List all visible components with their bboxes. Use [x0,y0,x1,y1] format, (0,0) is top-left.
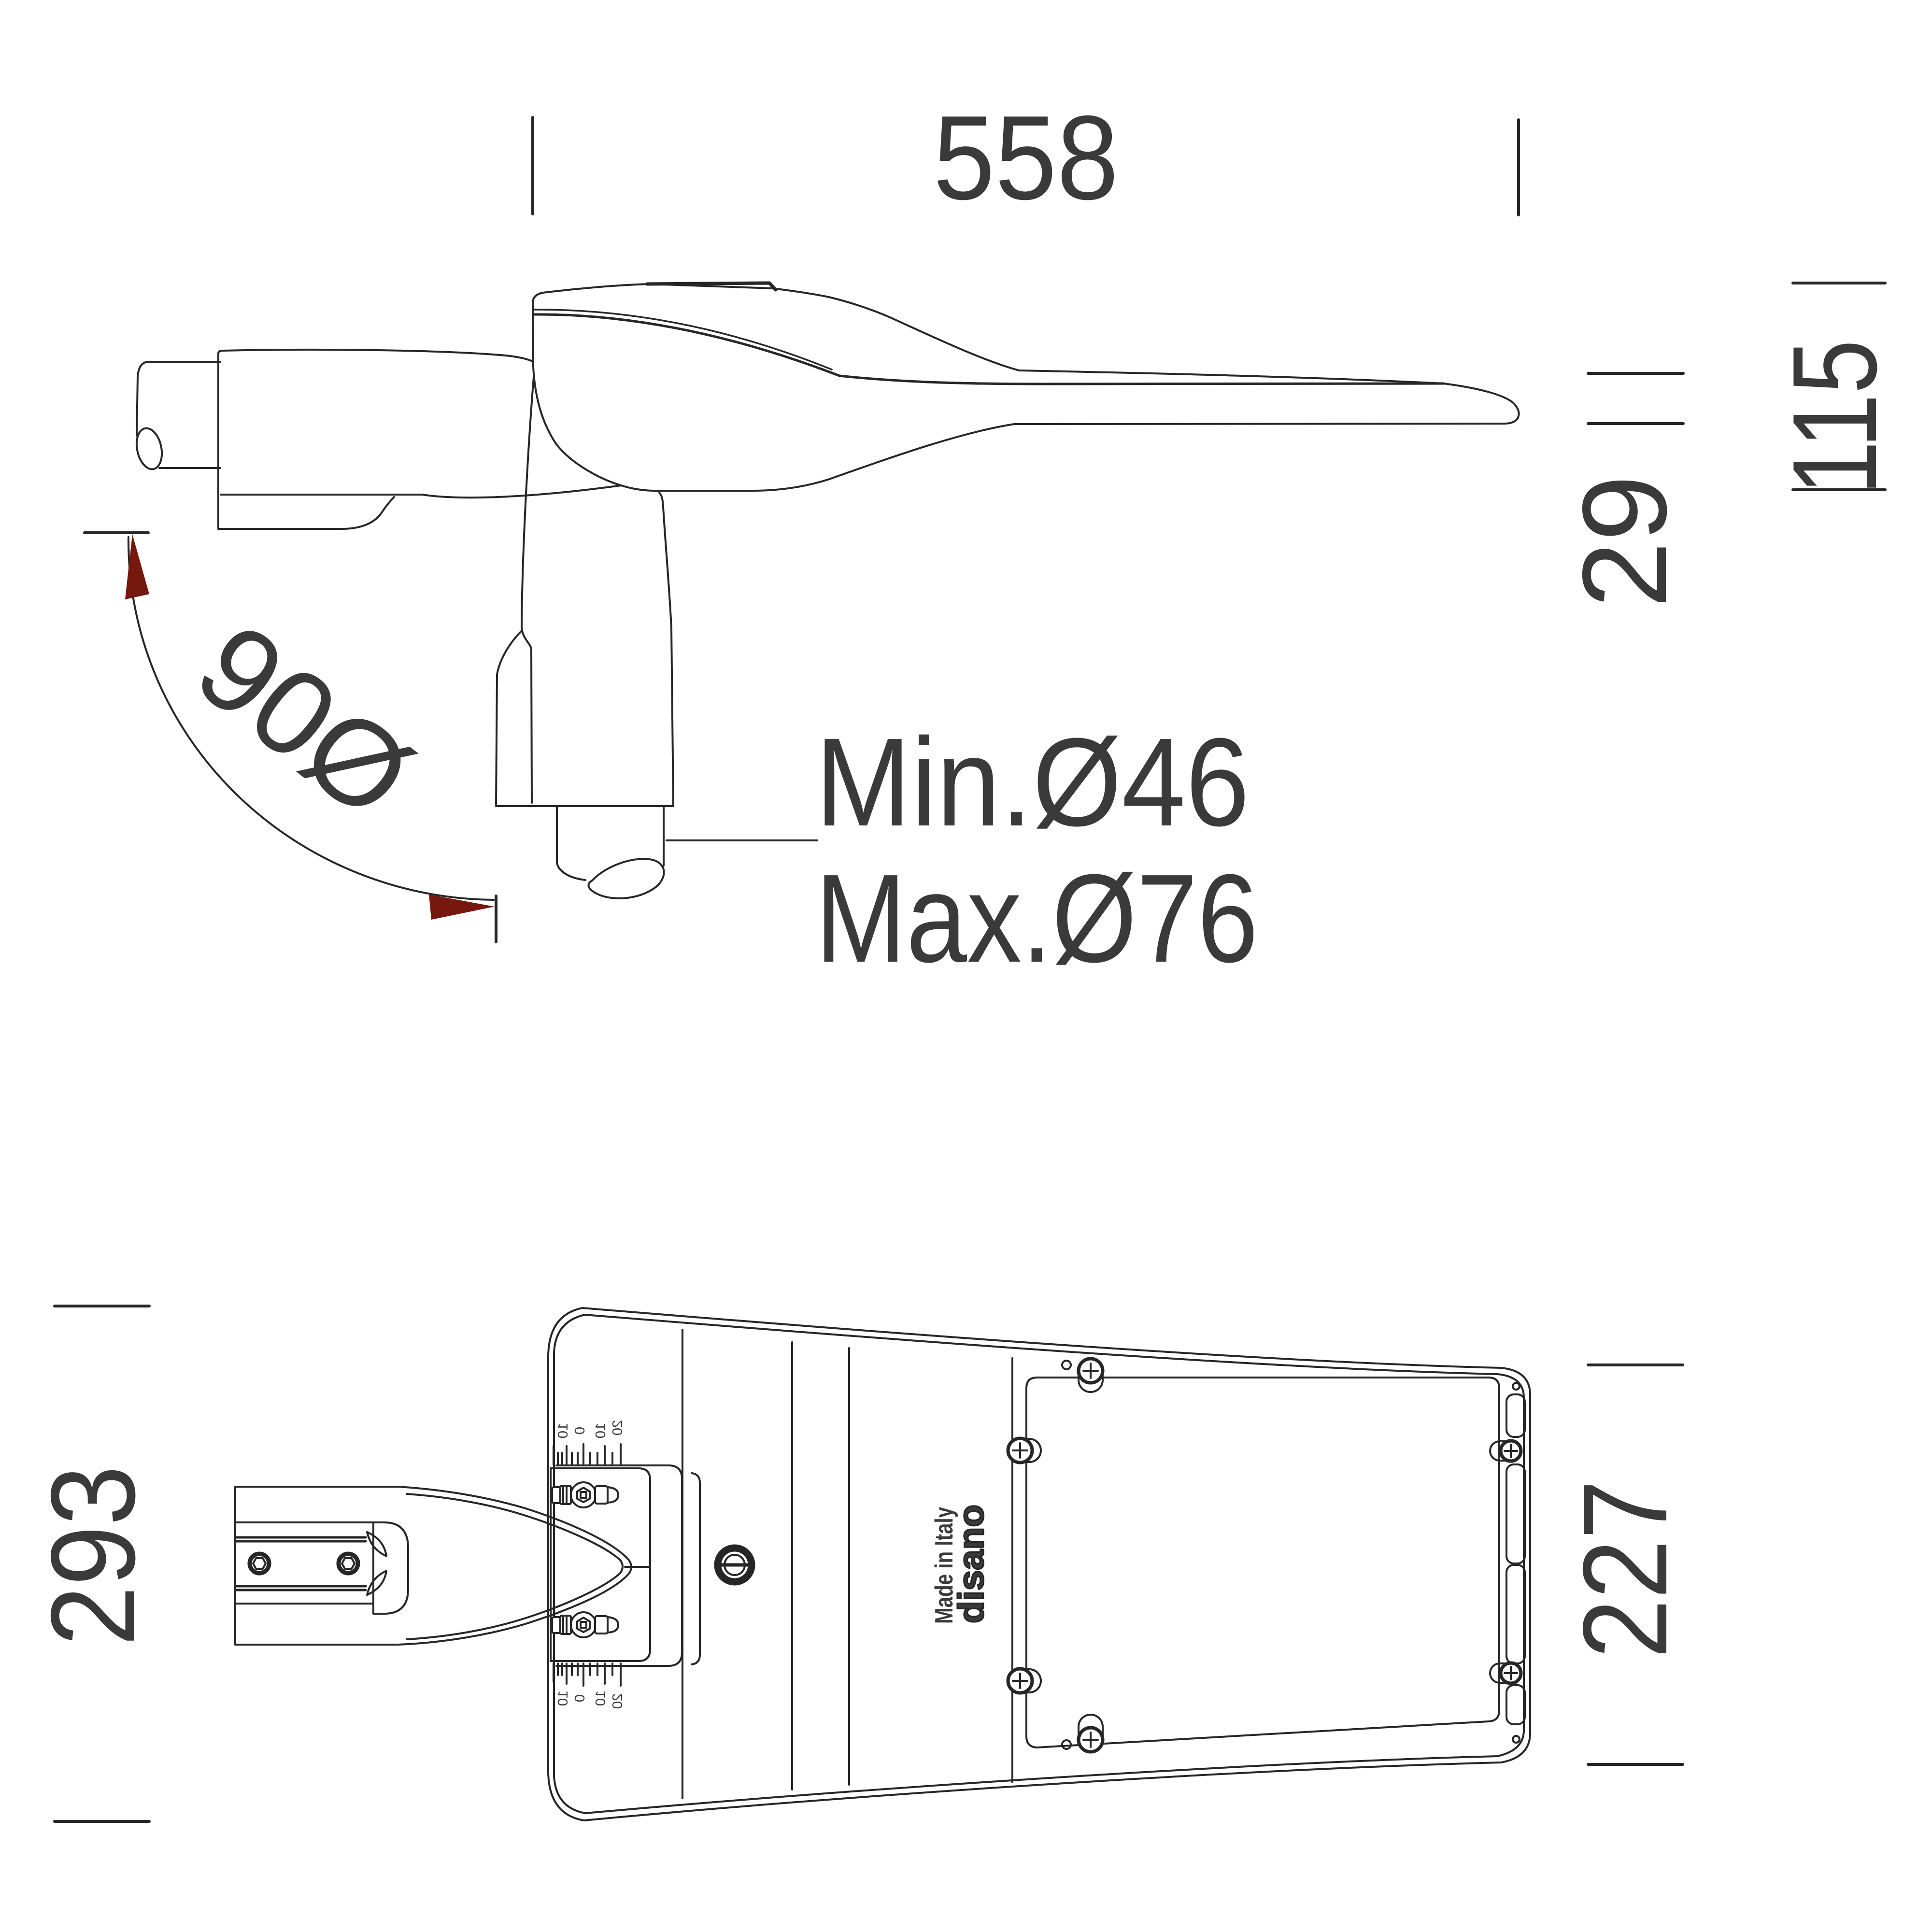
svg-text:0: 0 [572,1427,588,1435]
svg-text:0: 0 [572,1694,588,1702]
svg-text:Made in Italy: Made in Italy [930,1507,958,1624]
svg-text:293: 293 [26,1465,160,1646]
svg-text:Min.Ø46: Min.Ø46 [815,712,1250,852]
svg-text:558: 558 [933,90,1119,225]
svg-text:29: 29 [1557,475,1691,608]
svg-text:115: 115 [1767,340,1902,495]
svg-text:90Ø: 90Ø [173,597,436,844]
svg-text:10: 10 [593,1690,609,1706]
svg-text:20: 20 [610,1693,625,1709]
svg-text:10: 10 [593,1423,609,1438]
svg-text:20: 20 [610,1420,625,1435]
svg-text:10: 10 [555,1423,571,1438]
svg-text:Max.Ø76: Max.Ø76 [815,849,1258,989]
svg-text:10: 10 [555,1690,571,1706]
svg-text:227: 227 [1558,1480,1692,1659]
